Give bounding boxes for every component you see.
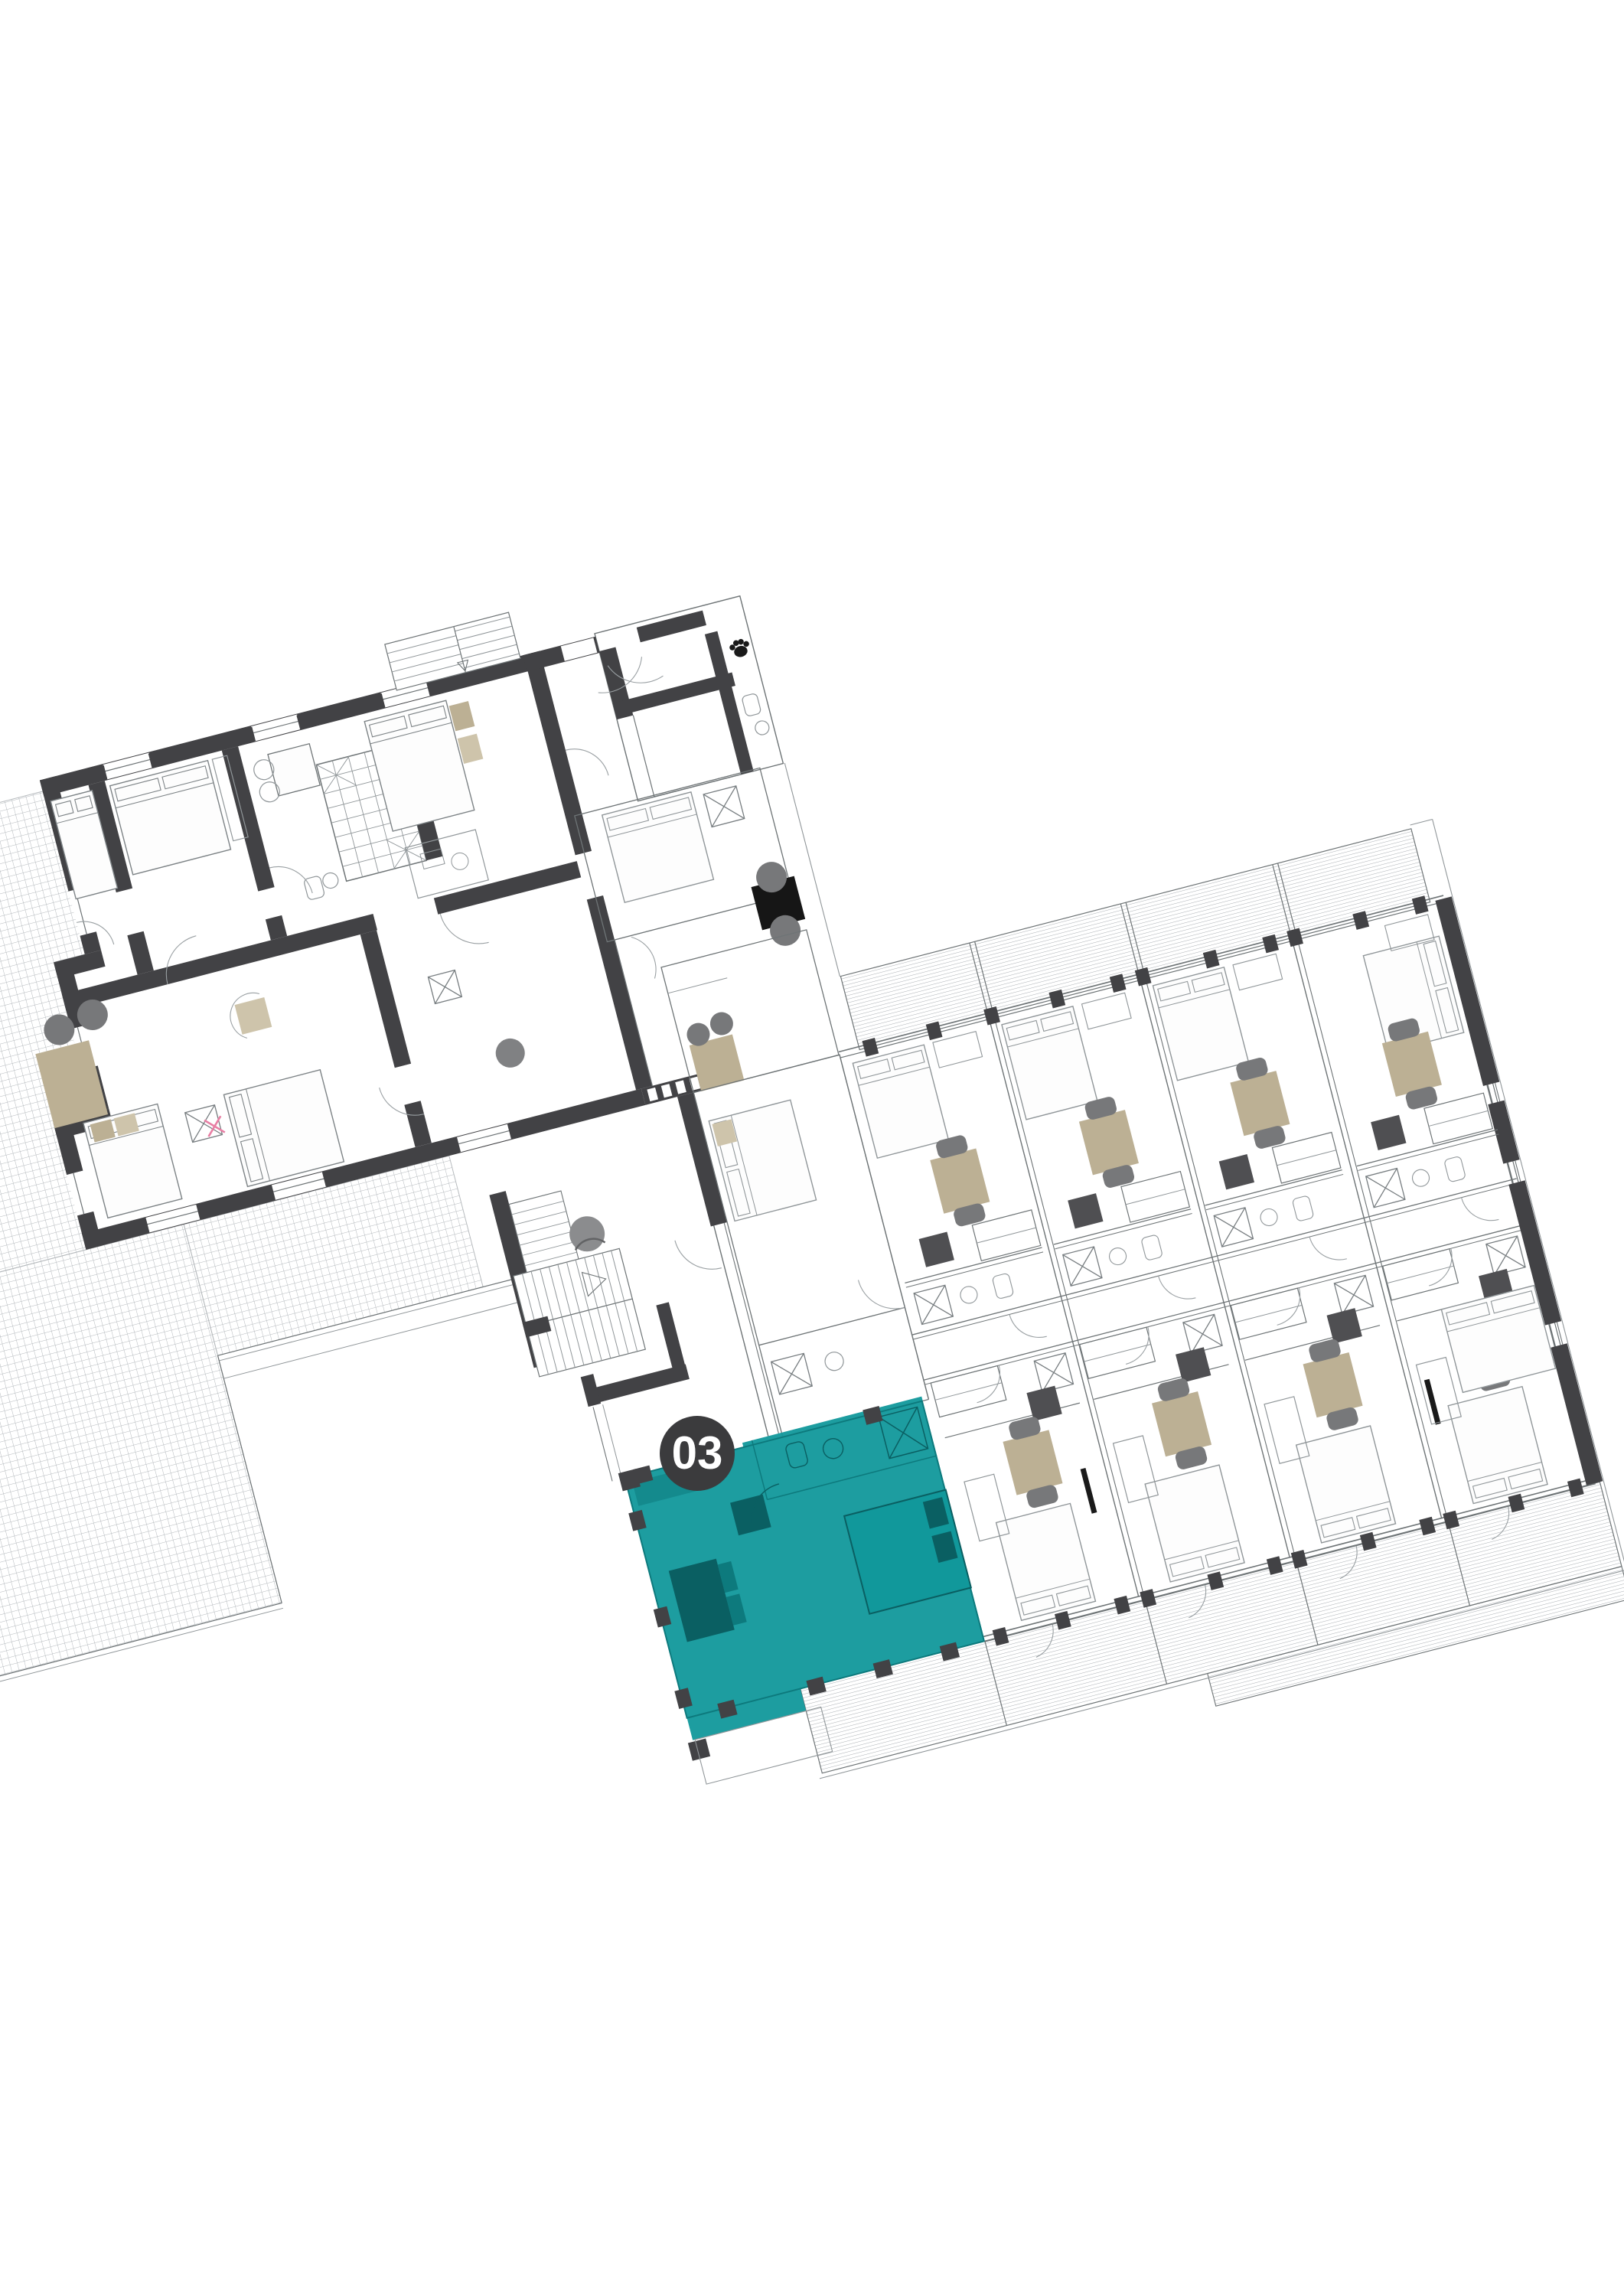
svg-text:03: 03 [672, 1427, 723, 1479]
